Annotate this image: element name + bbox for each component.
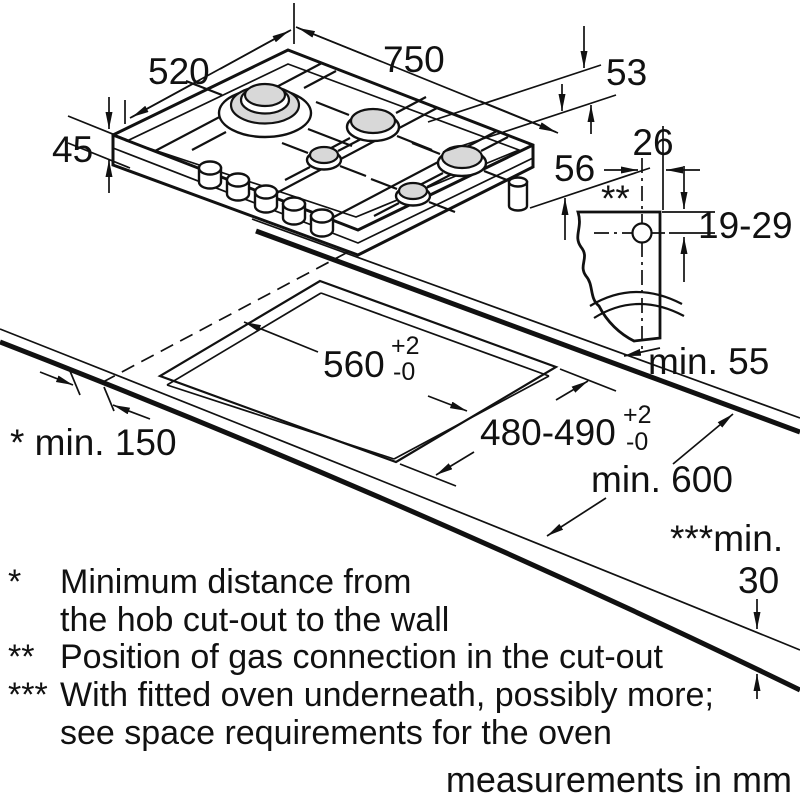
rear-clearance-label: min. 55: [648, 341, 769, 382]
installation-diagram-page: 750 520 45 53 56 26 **: [0, 0, 800, 797]
cutout-width-label: 560: [323, 344, 385, 385]
burner-small-center: [307, 147, 341, 170]
burner-back-center: [347, 109, 399, 141]
gas-footnote-marker: **: [601, 178, 630, 219]
hob-height-label: 45: [52, 129, 93, 170]
footnote-star-line2: the hob cut-out to the wall: [60, 601, 449, 639]
footnote-triplestar-line1: With fitted oven underneath, possibly mo…: [60, 676, 714, 714]
rear-wall-edge: [252, 219, 800, 432]
footnote-triplestar-marker: ***: [8, 676, 48, 714]
gas-connection-hole: [633, 224, 652, 243]
cutout-depth-tol-minus: -0: [626, 428, 648, 456]
units-note: measurements in mm: [446, 759, 792, 797]
cutout-depth-label: 480-490: [480, 412, 616, 453]
cutout-width-tol-plus: +2: [391, 332, 420, 360]
projection-dashed-line: [103, 252, 348, 382]
cutout-width-tol-minus: -0: [393, 358, 415, 386]
oven-clearance-marker: ***min.: [670, 518, 783, 559]
hob-width-label: 750: [383, 39, 445, 80]
cutout-depth-tol-plus: +2: [623, 401, 652, 429]
gas-inlet-pipe: [509, 178, 527, 211]
footnote-star-line1: Minimum distance from: [60, 563, 411, 601]
worktop-depth-label: min. 600: [591, 459, 733, 500]
side-clearance-label: * min. 150: [10, 422, 177, 463]
below-worktop-connection-label: 56: [554, 148, 595, 189]
footnote-doublestar-marker: **: [8, 638, 34, 676]
footnote-triplestar-line2: see space requirements for the oven: [60, 714, 612, 752]
dim-side-clearance: * min. 150: [10, 371, 177, 463]
dim-cutout-width: 560 +2 -0: [244, 322, 467, 411]
gas-offset-label: 26: [632, 122, 673, 163]
oven-clearance-value: 30: [738, 560, 779, 601]
below-worktop-label: 53: [606, 52, 647, 93]
hob-depth-label: 520: [148, 51, 210, 92]
footnotes: * Minimum distance from the hob cut-out …: [8, 563, 714, 752]
burner-front-center: [396, 183, 430, 206]
footnote-star-marker: *: [8, 563, 21, 601]
gas-depth-range-label: 19-29: [698, 205, 793, 246]
installation-diagram: 750 520 45 53 56 26 **: [0, 0, 800, 797]
footnote-doublestar-line1: Position of gas connection in the cut-ou…: [60, 638, 663, 676]
